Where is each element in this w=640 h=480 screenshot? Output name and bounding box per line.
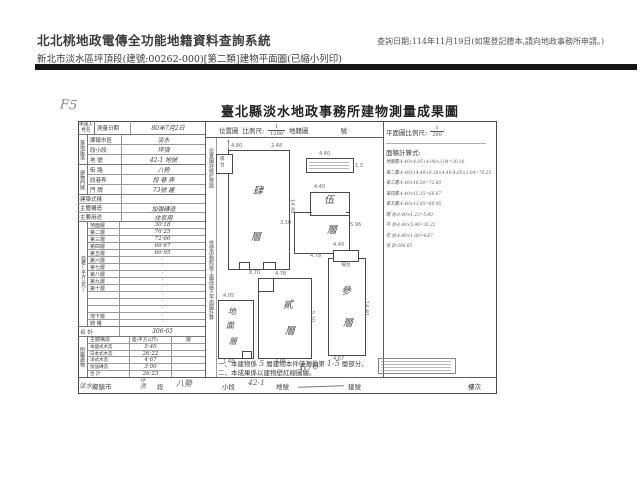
query-date: 查詢日期:114年11月19日(如需登記謄本,請向地政事務所申請。) [377, 36, 604, 47]
footer-lot-hand: 42-1 [248, 378, 265, 387]
location-scale-fraction: 1 1200 [268, 124, 285, 137]
site-group-rows: 鄉鎮市區淡水段小段坪頂地 號42-1 地號 [88, 135, 205, 164]
plan-5f-dim-bottom: 4.78 [310, 253, 321, 259]
misc-row-1: 主體構造加強磚造 [78, 204, 205, 213]
site-row-2-value: 42-1 地號 [122, 155, 205, 164]
floor-row-1-value: 76·25 [120, 229, 205, 235]
floor-row-3: 第四層66·67 [88, 243, 205, 250]
attached-row-1-label: 日本式木造 [88, 351, 130, 357]
floor-row-0: 地面層30·18 [88, 222, 205, 229]
plan-2f-dim-top: 4.78 [275, 271, 286, 277]
plan-scale-underline [386, 143, 486, 144]
attached-row-4-label: 合 計 [88, 371, 130, 377]
plan-4f-notch-2 [263, 262, 276, 270]
calc-line-1: 第二層:4.40×14.48+0.18×4.40-4.05×3.04=76.25 [386, 168, 480, 179]
map-header: 位置圖 比例尺: 1 1200 地籍圖 號 [219, 124, 381, 136]
plan-4f-dim-tr: 2.48 [271, 143, 282, 149]
attached-row-2-layer [172, 357, 205, 363]
plan-3f-notch: 陽台 [333, 250, 359, 262]
floor-row-9-label: 第十層 [88, 285, 120, 291]
floor-row-13-value: · [120, 313, 205, 319]
calc-line-2: 第三層:4.40×16.50=72.60 [386, 178, 480, 189]
floor-row-13-label: 地下層 [88, 313, 120, 319]
floor-row-14: 騎 樓· [88, 320, 205, 326]
calc-line-4: 第五層:4.40×13.85=60.95 [386, 199, 480, 210]
plan-scale-label: 平面圖比例尺: [386, 127, 427, 137]
row-survey-date: 申請人姓名測量日期80年7月2日 [78, 121, 205, 135]
floor-row-12-label [88, 306, 120, 312]
attached-row-1-layer [172, 351, 205, 357]
footer-lot-label: 地號 [276, 381, 289, 391]
plan-3f-dim-top: 4.40 [333, 242, 344, 248]
site-row-1-label: 段小段 [88, 145, 122, 154]
site-group: 基地座落鄉鎮市區淡水段小段坪頂地 號42-1 地號 [78, 135, 205, 165]
attached-row-1-value: 26·22 [130, 351, 172, 357]
floor-row-11: · [88, 299, 205, 306]
attached-row-4-layer [172, 371, 205, 377]
calc-line-0: 地面層:4.40×4.05+4.00×3.04=30.18 [386, 157, 480, 168]
attached-row-4-value: 26·23 [130, 371, 172, 377]
attached-row-1: 日本式木造26·22 [88, 351, 205, 358]
floor-row-0-label: 地面層 [88, 222, 120, 228]
plan-4f-label-2: 層 [251, 233, 261, 243]
app-title: 北北桃地政電傳全功能地籍資料查詢系統 [37, 30, 271, 49]
footer-town-label: 鄉鎮市 [92, 381, 112, 391]
plan-3f-notch-label: 陽台 [342, 263, 351, 268]
document-subtitle: 新北市淡水區坪頂段(建號:00262-000)[第二類]建物平面圖(已縮小列印) [37, 51, 342, 65]
site-row-0: 鄉鎮市區淡水 [88, 135, 205, 145]
floor-plan-3f: 陽台 參 層 4.40 14.40 4.67 [328, 258, 366, 356]
attached-row-2-label: 洋式木造 [88, 357, 130, 363]
stamp-line-1 [381, 361, 451, 365]
floor-row-7-label: 第八層 [88, 271, 120, 277]
floor-row-4-label: 第五層 [88, 250, 120, 256]
plan-3f-dim-right: 14.40 [363, 301, 369, 315]
floor-row-8: 第九層· [88, 278, 205, 285]
plan-scale-fraction: 1 200 [430, 125, 444, 138]
site-row-0-label: 鄉鎮市區 [88, 135, 122, 144]
plan-4f-dim-bottom: 8.70 [249, 270, 260, 276]
floor-row-12-value: · [120, 306, 205, 312]
address-row-1-label: 段巷弄 [88, 175, 122, 184]
floor-row-0-value: 30·18 [120, 222, 205, 228]
floor-plan-ground: 地 面 層 4.05 1.48 [218, 300, 254, 359]
area-calc-lines: 地面層:4.40×4.05+4.00×3.04=30.18第二層:4.40×14… [386, 157, 496, 257]
attached-row-3-layer [172, 364, 205, 370]
floors-group-label: 面積(平方公尺) [78, 222, 88, 326]
attached-row-4: 合 計26·23 [88, 371, 205, 377]
site-row-2: 地 號42-1 地號 [88, 155, 205, 164]
site-row-0-value: 淡水 [122, 135, 205, 144]
stamp-line-2 [381, 367, 451, 371]
plan-5f-seam [312, 211, 346, 214]
calc-line-6: 平 台:4.40×5.96=26.22 [386, 220, 480, 231]
address-row-1: 段巷弄段 巷 弄 [88, 175, 205, 185]
plan-3f-label-2: 層 [343, 319, 353, 329]
attached-header-area: 面(平方公尺) [130, 337, 172, 343]
misc-rows: 建築式樣主體構造加強磚造主要用途住家用 [78, 195, 205, 221]
total-row: 合 計306·65 [78, 327, 205, 337]
footer-section-label: 段 [157, 381, 164, 391]
plan-ground-dim-top: 4.05 [223, 293, 234, 299]
plan-2f-step [258, 278, 274, 292]
attached-row-0-value: 5·40 [130, 344, 172, 350]
calc-line-5: 陽 台:4.40×1.23=5.40 [386, 210, 480, 221]
address-group: 建物門牌街 路八勢段巷弄段 巷 弄門 牌73號 建 [78, 165, 205, 195]
floor-row-2: 第三層72·60 [88, 236, 205, 243]
attached-header-structure: 主體構造 [88, 337, 130, 343]
floor-row-13: 地下層· [88, 313, 205, 320]
annex-dim-right: 1.3 [355, 163, 363, 169]
address-row-0-value: 八勢 [122, 165, 205, 174]
floor-row-14-label: 騎 樓 [88, 320, 120, 326]
site-group-label: 基地座落 [78, 135, 88, 164]
survey-date-label: 測量日期 [95, 121, 131, 134]
misc-row-0: 建築式樣 [78, 195, 205, 204]
plan-ground-label-3: 層 [229, 337, 237, 347]
strip-note-plan: 依使用執照竣工圖改繪之平面圖計算 [206, 240, 216, 374]
plan-4f-balcony: 陽台 [216, 154, 233, 174]
floor-rows: 地面層30·18第二層76·25第三層72·60第四層66·67第五層60·95… [88, 222, 205, 326]
floor-row-9-value: · [120, 285, 205, 291]
stamp-box [378, 358, 456, 374]
query-system-page: 北北桃地政電傳全功能地籍資料查詢系統 新北市淡水區坪頂段(建號:00262-00… [0, 0, 640, 480]
address-group-label: 建物門牌 [78, 165, 88, 194]
scale-label: 比例尺: [243, 125, 265, 135]
address-row-0: 街 路八勢 [88, 165, 205, 175]
plan-ground-label-2: 面 [226, 321, 234, 331]
misc-group: 建築式樣主體構造加強磚造主要用途住家用 [78, 195, 205, 222]
floor-row-6-label: 第七層 [88, 264, 120, 270]
divider-map-header [205, 137, 384, 138]
floor-row-2-value: 72·60 [120, 236, 205, 242]
address-row-2: 門 牌73號 建 [88, 185, 205, 194]
cadastre-map-label: 地籍圖 [289, 125, 309, 135]
footer-building-label: 建號 [348, 381, 361, 391]
header-divider-bar [35, 64, 637, 70]
total-value: 306·65 [120, 327, 205, 336]
floor-row-12: · [88, 306, 205, 313]
applicant-label: 申請人姓名 [78, 121, 95, 134]
number-label: 號 [340, 125, 347, 135]
misc-row-2-value: 住家用 [122, 213, 205, 221]
floor-row-7-value: · [120, 271, 205, 277]
address-group-rows: 街 路八勢段巷弄段 巷 弄門 牌73號 建 [88, 165, 205, 194]
note-1-hand-range: 1-5 [327, 359, 340, 368]
plan-3f-label-1: 參 [341, 287, 351, 297]
floors-group: 面積(平方公尺)地面層30·18第二層76·25第三層72·60第四層66·67… [78, 222, 205, 327]
plan-scale: 平面圖比例尺: 1 200 [386, 125, 444, 138]
attached-row-0: 本國式木造5·40 [88, 344, 205, 351]
survey-data-table: 申請人姓名測量日期80年7月2日基地座落鄉鎮市區淡水段小段坪頂地 號42-1 地… [78, 121, 205, 377]
attached-group-label: 附屬建物 [78, 337, 88, 377]
plan-4f-label-1: 肆 [253, 187, 263, 197]
floor-row-8-label: 第九層 [88, 278, 120, 284]
floor-row-4: 第五層60·95 [88, 250, 205, 257]
floor-row-1: 第二層76·25 [88, 229, 205, 236]
plan-2f-label-1: 貳 [283, 301, 293, 311]
footer-subsection-hand: 八勢 [176, 378, 192, 389]
misc-row-1-label: 主體構造 [78, 204, 122, 212]
attached-row-2: 洋式木造4·67 [88, 357, 205, 364]
footer-subsection-label: 小段 [222, 381, 235, 391]
attached-header: 主體構造面(平方公尺)層 [88, 337, 205, 344]
calc-line-3: 第四層:4.40×15.15=66.67 [386, 189, 480, 200]
attached-row-0-label: 本國式木造 [88, 344, 130, 350]
plan-4f-notch-1 [239, 262, 250, 270]
floor-row-8-value: · [120, 278, 205, 284]
attached-row-3-label: 加強磚造 [88, 364, 130, 370]
floor-row-11-value: · [120, 299, 205, 305]
site-row-2-label: 地 號 [88, 155, 122, 164]
floor-row-9: 第十層· [88, 285, 205, 292]
total-label: 合 計 [78, 327, 120, 336]
plan-5f-dim-right: 5.96 [350, 222, 361, 228]
attached-group: 附屬建物主體構造面(平方公尺)層本國式木造5·40日本式木造26·22洋式木造4… [78, 337, 205, 377]
plan-5f-dim-top: 4.40 [314, 184, 325, 190]
plan-5f-label-1: 伍 [324, 196, 334, 206]
floor-row-6: 第七層· [88, 264, 205, 271]
area-calc-label: 面積計算式: [386, 147, 421, 157]
annex-illegible-text [309, 161, 349, 169]
floor-row-10-label [88, 292, 120, 298]
corner-mark: F5 [59, 97, 77, 113]
misc-row-1-value: 加強磚造 [122, 204, 205, 212]
divider-right-panel [383, 121, 384, 377]
plan-ground-label-1: 地 [228, 307, 236, 317]
attached-row-0-layer [172, 344, 205, 350]
calc-line-7: 花 台:4.40×1.06=4.67 [386, 231, 480, 242]
address-row-2-value: 73號 建 [122, 185, 205, 194]
site-row-1-value: 坪頂 [122, 145, 205, 154]
document-title: 臺北縣淡水地政事務所建物測量成果圖 [190, 101, 490, 120]
footer-area-hand: 淡水 [79, 380, 92, 390]
floor-row-3-value: 66·67 [120, 243, 205, 249]
address-row-1-value: 段 巷 弄 [122, 175, 205, 184]
plan-2f-label-2: 層 [285, 327, 295, 337]
survey-date-value: 80年7月2日 [131, 121, 205, 134]
floor-row-11-label [88, 299, 120, 305]
plan-2f-dim-right: 5.10 [309, 311, 315, 322]
attached-row-3: 加強磚造3·00 [88, 364, 205, 371]
footer-floor-label: 樓次 [468, 381, 481, 391]
site-row-1: 段小段坪頂 [88, 145, 205, 155]
plan-4f-dim-top: 4.80 [231, 143, 242, 149]
misc-row-2-label: 主要用途 [78, 213, 122, 221]
floor-row-3-label: 第四層 [88, 243, 120, 249]
floor-row-2-label: 第三層 [88, 236, 120, 242]
plan-5f-label-2: 層 [327, 226, 337, 236]
floor-plan-4f: 陽台 肆 層 4.80 2.48 14.48 8.70 [228, 150, 290, 270]
attached-row-2-value: 4·67 [130, 357, 172, 363]
misc-row-0-label: 建築式樣 [78, 195, 122, 203]
floor-plan-2f: 貳 層 4.78 5.10 4.05 [258, 278, 312, 359]
floor-row-10-value: · [120, 292, 205, 298]
misc-row-0-value [122, 195, 205, 203]
floor-row-5-label: 第六層 [88, 257, 120, 263]
floor-row-4-value: 60·95 [120, 250, 205, 256]
attached-rows: 主體構造面(平方公尺)層本國式木造5·40日本式木造26·22洋式木造4·67加… [88, 337, 205, 377]
footer-section-hand: 坪頂 [140, 378, 147, 390]
annex-dim-top: 4.40 [319, 151, 330, 157]
address-row-0-label: 街 路 [88, 165, 122, 174]
plan-4f-balcony-label: 陽台 [220, 157, 226, 169]
annex-box: 4.40 1.3 [306, 158, 354, 173]
floor-row-14-value: · [120, 320, 205, 326]
strip-note-location: 位置圖詳繪於旁面 [206, 148, 216, 234]
attached-row-3-value: 3·00 [130, 364, 172, 370]
misc-row-2: 主要用途住家用 [78, 213, 205, 221]
location-map-label: 位置圖 [219, 125, 239, 135]
attached-header-layer: 層 [172, 337, 205, 343]
address-row-2-label: 門 牌 [88, 185, 122, 194]
calc-line-8: 合 計:306.65 [386, 241, 480, 252]
floor-row-5: 第六層· [88, 257, 205, 264]
floor-row-7: 第八層· [88, 271, 205, 278]
floor-row-10: · [88, 292, 205, 299]
plan-5f-dim-left: 3.10 [280, 220, 291, 226]
floor-row-5-value: · [120, 257, 205, 263]
floor-row-1-label: 第二層 [88, 229, 120, 235]
floor-row-6-value: · [120, 264, 205, 270]
